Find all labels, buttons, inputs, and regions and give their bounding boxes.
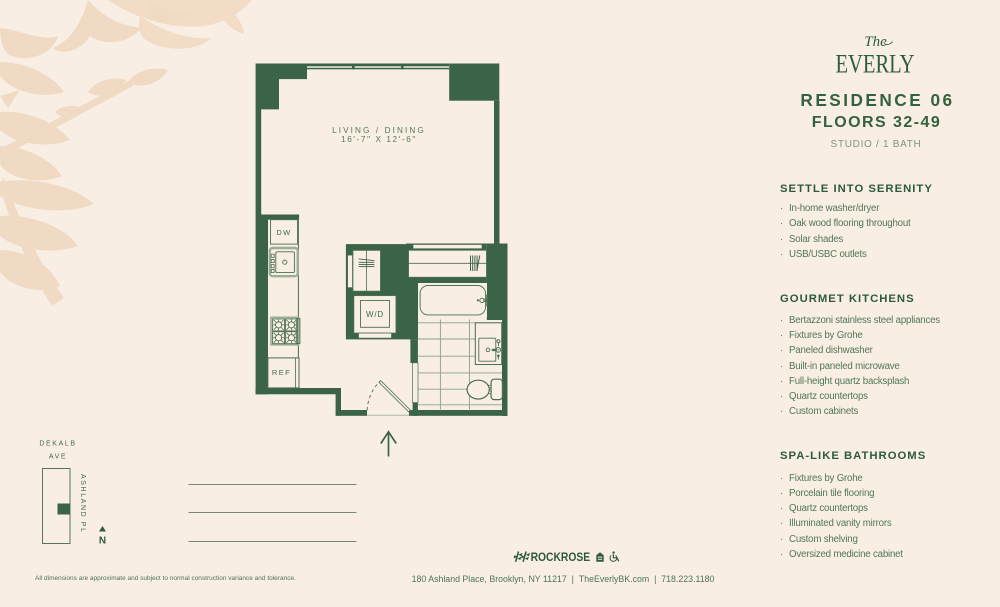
svg-text:ASHLAND PL: ASHLAND PL xyxy=(79,474,86,534)
svg-text:N: N xyxy=(99,536,106,547)
svg-text:AVE: AVE xyxy=(49,454,67,461)
svg-text:REF: REF xyxy=(272,368,291,377)
svg-text:The: The xyxy=(864,34,887,50)
svg-text:LIVING / DINING: LIVING / DINING xyxy=(332,126,426,135)
svg-text:EVERLY: EVERLY xyxy=(836,49,915,78)
svg-text:16'-7" X 12'-6": 16'-7" X 12'-6" xyxy=(341,135,417,144)
svg-text:DEKALB: DEKALB xyxy=(39,441,76,448)
svg-text:W/D: W/D xyxy=(366,310,384,319)
svg-text:ROCKROSE: ROCKROSE xyxy=(531,552,591,564)
svg-text:DW: DW xyxy=(276,228,291,237)
